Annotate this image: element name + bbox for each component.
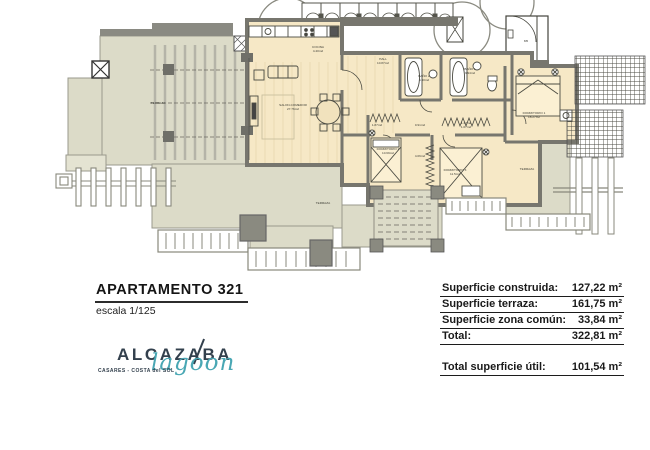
row-label: Total superficie útil: [442,361,546,373]
plan-label: 18.27m2 [528,115,540,119]
row-value: 101,54 m² [572,361,622,373]
plan-label: 3.94m2 [465,71,476,75]
plan-label: 1.07m2 [461,125,472,129]
railing-pier [310,240,332,266]
table-row: Total:322,81 m² [440,329,624,345]
kitchen-counter [249,26,339,37]
post [163,131,174,142]
area-table-rows: Superficie construida:127,22 m²Superfici… [440,281,624,345]
logo-tagline: CASARES - COSTA del SOL [98,368,174,374]
bed-dorm2 [369,130,401,182]
terrace-bench [66,155,106,171]
plan-label: 1.87m2 [372,123,383,127]
table-row: Superficie construida:127,22 m² [440,281,624,297]
table-row: Superficie zona común:33,84 m² [440,313,624,329]
alcazaba-logo: ALCAZABA lagoon CASARES - COSTA del SOL [95,336,265,406]
floor-plan-drawing: COCINA4.40m2HALL10.87m2BAÑO 24.30m2BAÑO … [0,0,650,278]
plan-label: 10.69m2 [382,151,394,155]
plan-label: 4.30m2 [419,78,430,82]
row-label: Superficie construida: [442,282,558,294]
plan-label: 10.87m2 [377,61,389,65]
plan-label: TERRAZA [151,101,166,105]
row-value: 33,84 m² [578,314,622,326]
row-label: Superficie zona común: [442,314,566,326]
scale-label: escala 1/125 [96,305,156,317]
area-table: Superficie construida:127,22 m²Superfici… [440,281,624,376]
kitchen-top-wall [340,17,458,26]
row-value: 127,22 m² [572,282,622,294]
plan-label: TERRAZA [316,201,331,205]
plan-label: 4.40m2 [313,49,324,53]
terrace-left [68,78,102,165]
bathtub-2 [450,58,467,96]
terrace-top-wall [100,29,233,36]
table-row: Superficie terraza:161,75 m² [440,297,624,313]
plan-label: 0.91m2 [415,123,426,127]
row-label: Total: [442,330,471,342]
post [163,64,174,75]
title-block: APARTAMENTO 321 [95,281,248,303]
terrace-walls [100,23,233,36]
floor-plan-page: COCINA4.40m2HALL10.87m2BAÑO 24.30m2BAÑO … [0,0,650,450]
plan-label: M5 [524,39,529,43]
row-value: 322,81 m² [572,330,622,342]
railing-pier [240,215,266,241]
stairs [370,186,444,252]
bed-dorm3 [440,148,489,198]
terrace-top-wall-2 [152,23,233,29]
plan-svg: COCINA4.40m2HALL10.87m2BAÑO 24.30m2BAÑO … [0,0,650,278]
row-value: 161,75 m² [572,298,622,310]
row-label: Superficie terraza: [442,298,538,310]
page-title: APARTAMENTO 321 [95,282,248,303]
plan-label: 27.76m2 [287,107,299,111]
sink [429,70,437,78]
total-util-row: Total superficie útil: 101,54 m² [440,360,624,376]
plan-label: 4.06m2 [415,154,426,158]
plan-label: 11.5m2 [450,172,460,176]
plan-label: TERRAZA [520,167,535,171]
toilet [488,76,498,91]
